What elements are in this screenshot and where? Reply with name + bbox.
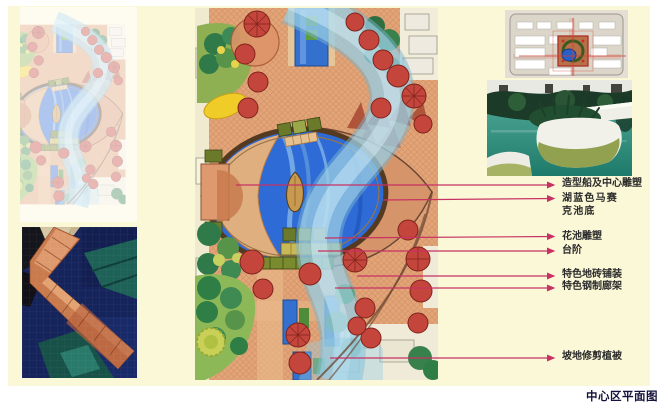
annotation-label-steps: 台阶	[562, 245, 582, 258]
faded-plan-thumbnail	[20, 7, 137, 222]
annotation-label-paving: 特色地砖铺装	[562, 269, 622, 282]
pool-edge-photo	[22, 227, 137, 378]
planter-pool-photo	[487, 80, 632, 176]
annotation-label-slope-planting: 坡地修剪植被	[562, 351, 622, 364]
site-plan-image	[505, 10, 628, 78]
site-plan-thumbnail	[505, 10, 628, 78]
annotation-label-mosaic-pool-bottom: 湖蓝色马赛 克池底	[562, 193, 618, 218]
main-plan-figure	[195, 8, 438, 380]
annotation-label-planter-sculpture: 花池雕塑	[562, 231, 602, 244]
main-plan-image	[195, 8, 438, 380]
page: 造型船及中心雕塑 湖蓝色马赛 克池底 花池雕塑 台阶 特色地砖铺装 特色钢制廊架…	[0, 0, 662, 405]
pool-edge-image	[22, 227, 137, 378]
annotation-label-boat-sculpture: 造型船及中心雕塑	[562, 178, 642, 191]
faded-plan-image	[20, 7, 137, 222]
plan-title: 中心区平面图	[586, 388, 658, 404]
annotation-label-steel-pergola: 特色钢制廊架	[562, 281, 622, 294]
planter-pool-image	[487, 80, 632, 176]
